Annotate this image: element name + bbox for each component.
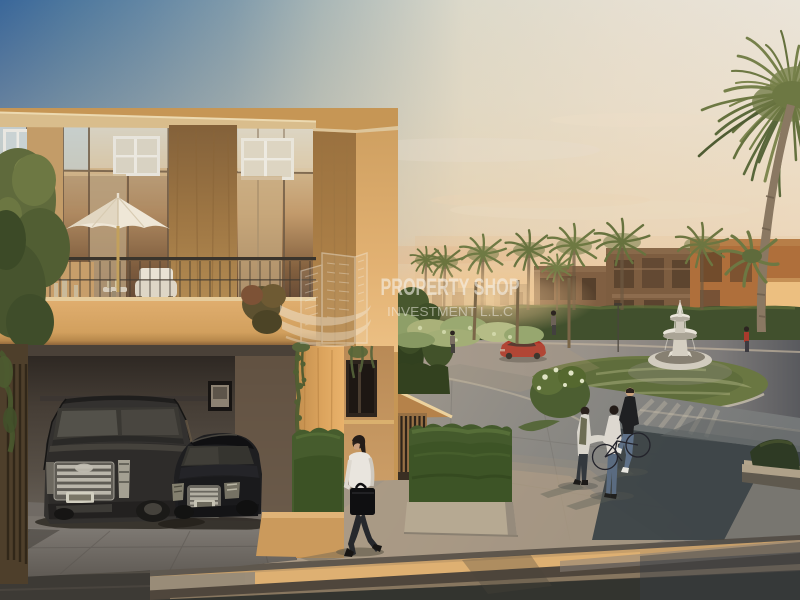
svg-text:INVESTMENT L.L.C: INVESTMENT L.L.C: [387, 305, 513, 319]
svg-text:PROPERTY SHOP: PROPERTY SHOP: [381, 274, 520, 301]
